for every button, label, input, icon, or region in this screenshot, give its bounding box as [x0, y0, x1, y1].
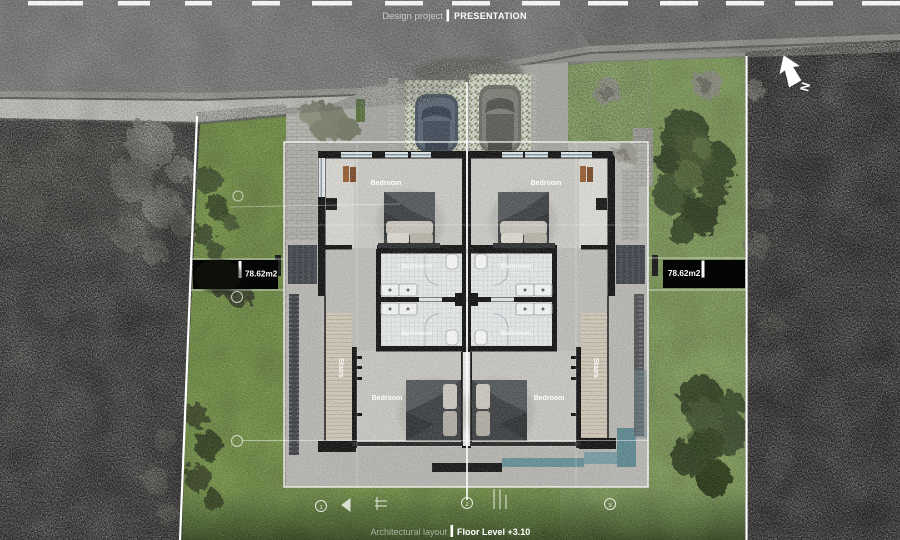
svg-text:Bedroom: Bedroom	[372, 395, 403, 402]
svg-text:Bedroom: Bedroom	[534, 395, 565, 402]
svg-text:Bathroom: Bathroom	[402, 263, 433, 270]
svg-text:78.62m2: 78.62m2	[245, 270, 278, 279]
svg-text:Bathroom: Bathroom	[501, 330, 532, 337]
svg-text:Bedroom: Bedroom	[371, 180, 402, 187]
svg-text:Floor Level +3.10: Floor Level +3.10	[457, 527, 530, 537]
svg-text:Architectural layout: Architectural layout	[370, 527, 447, 537]
svg-text:Bedroom: Bedroom	[531, 180, 562, 187]
svg-text:Design project: Design project	[382, 11, 443, 22]
svg-text:Bathroom: Bathroom	[501, 263, 532, 270]
svg-text:Stairs: Stairs	[337, 358, 344, 378]
svg-text:78.62m2: 78.62m2	[668, 269, 701, 278]
svg-text:Bathroom: Bathroom	[402, 330, 433, 337]
svg-text:Stairs: Stairs	[592, 358, 599, 378]
svg-text:PRESENTATION: PRESENTATION	[454, 11, 527, 21]
